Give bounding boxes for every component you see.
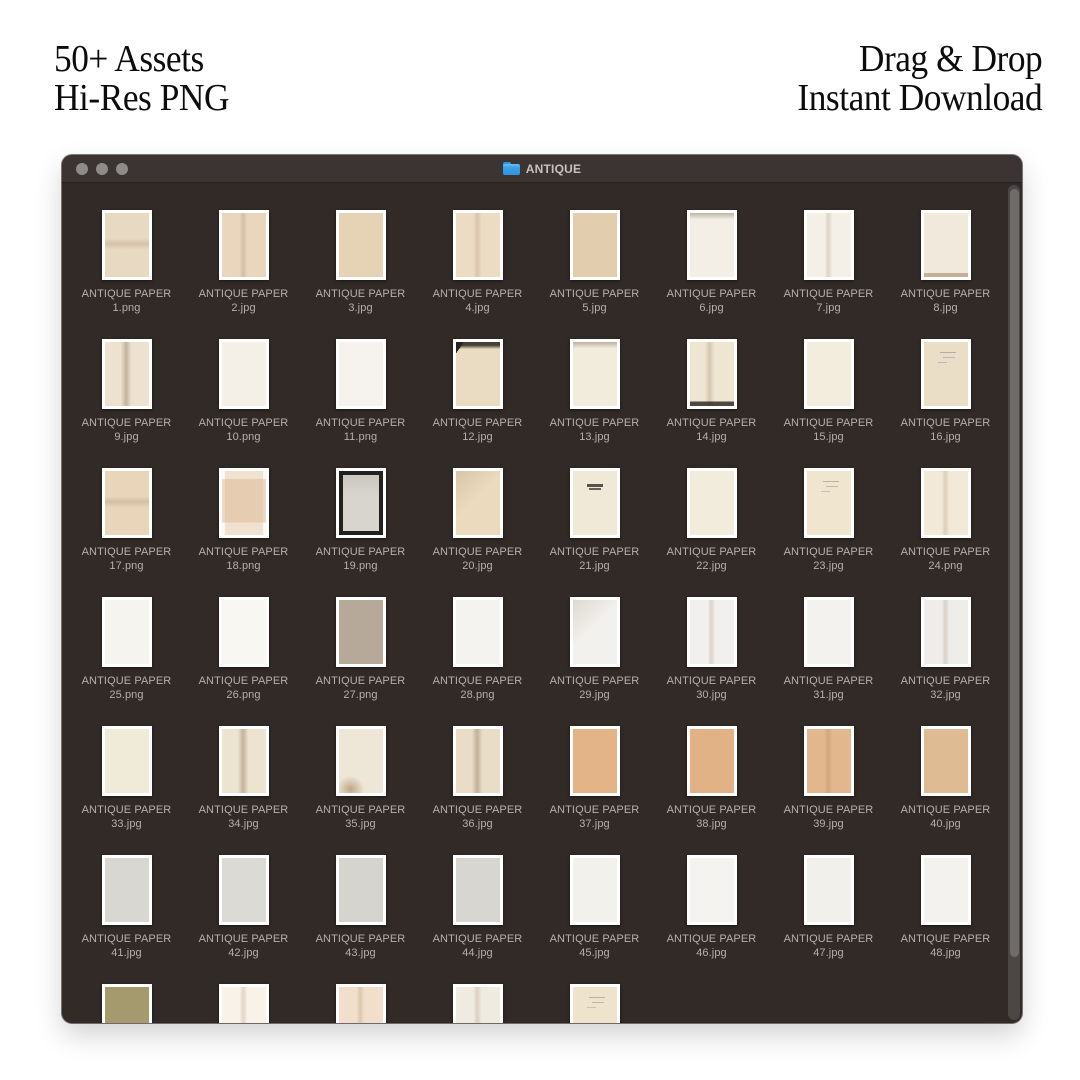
file-label-line1: ANTIQUE PAPER (667, 932, 757, 946)
file-label-line2: 23.jpg (784, 559, 874, 573)
file-item[interactable]: ANTIQUE PAPER 10.png (185, 339, 302, 468)
paper-preview (924, 600, 968, 664)
file-label: ANTIQUE PAPER 41.jpg (82, 932, 172, 960)
file-thumbnail (687, 468, 737, 538)
paper-preview (456, 858, 500, 922)
paper-preview (339, 987, 383, 1023)
folder-icon (503, 162, 520, 175)
file-thumbnail (570, 468, 620, 538)
file-thumbnail (570, 726, 620, 796)
file-label-line2: 14.jpg (667, 430, 757, 444)
paper-preview (573, 213, 617, 277)
traffic-lights (76, 155, 128, 183)
file-label-line2: 22.jpg (667, 559, 757, 573)
file-thumbnail (336, 984, 386, 1023)
file-item[interactable]: ANTIQUE PAPER 11.png (302, 339, 419, 468)
paper-preview (222, 600, 266, 664)
file-label: ANTIQUE PAPER 9.jpg (82, 416, 172, 444)
file-item[interactable]: ANTIQUE PAPER 41.jpg (68, 855, 185, 984)
file-label-line1: ANTIQUE PAPER (667, 545, 757, 559)
file-item[interactable]: ANTIQUE PAPER 29.jpg (536, 597, 653, 726)
paper-preview (105, 600, 149, 664)
file-label-line2: 47.jpg (784, 946, 874, 960)
file-label: ANTIQUE PAPER 33.jpg (82, 803, 172, 831)
file-label-line2: 41.jpg (82, 946, 172, 960)
file-item[interactable]: ANTIQUE PAPER 47.jpg (770, 855, 887, 984)
file-label-line2: 46.jpg (667, 946, 757, 960)
window-title: ANTIQUE (526, 162, 581, 176)
file-item[interactable]: ANTIQUE PAPER 9.jpg (68, 339, 185, 468)
file-item[interactable]: ANTIQUE PAPER 12.jpg (419, 339, 536, 468)
paper-preview (222, 987, 266, 1023)
file-label-line2: 24.png (901, 559, 991, 573)
file-label-line1: ANTIQUE PAPER (901, 545, 991, 559)
file-label-line2: 5.jpg (550, 301, 640, 315)
paper-preview (456, 213, 500, 277)
paper-preview (924, 729, 968, 793)
file-label-line2: 2.jpg (199, 301, 289, 315)
file-label: ANTIQUE PAPER 10.png (199, 416, 289, 444)
file-item[interactable]: ANTIQUE PAPER 2.jpg (185, 210, 302, 339)
file-label: ANTIQUE PAPER 17.png (82, 545, 172, 573)
file-item[interactable]: ANTIQUE PAPER 36.jpg (419, 726, 536, 855)
file-thumbnail (804, 468, 854, 538)
file-label: ANTIQUE PAPER 32.jpg (901, 674, 991, 702)
file-thumbnail (687, 339, 737, 409)
paper-preview (456, 342, 500, 406)
file-label-line1: ANTIQUE PAPER (82, 803, 172, 817)
file-label-line1: ANTIQUE PAPER (82, 932, 172, 946)
file-label-line1: ANTIQUE PAPER (199, 674, 289, 688)
file-thumbnail (921, 468, 971, 538)
file-label-line1: ANTIQUE PAPER (550, 416, 640, 430)
paper-preview (222, 858, 266, 922)
file-label-line1: ANTIQUE PAPER (433, 545, 523, 559)
file-thumbnail (336, 468, 386, 538)
file-item[interactable]: ANTIQUE PAPER 18.png (185, 468, 302, 597)
file-label-line1: ANTIQUE PAPER (316, 674, 406, 688)
file-thumbnail (804, 597, 854, 667)
file-thumbnail (102, 984, 152, 1023)
paper-preview (573, 729, 617, 793)
file-item[interactable]: ANTIQUE PAPER 26.png (185, 597, 302, 726)
paper-preview (924, 213, 968, 277)
file-label-line2: 44.jpg (433, 946, 523, 960)
file-thumbnail (102, 597, 152, 667)
file-label: ANTIQUE PAPER 20.jpg (433, 545, 523, 573)
file-label-line2: 40.jpg (901, 817, 991, 831)
file-thumbnail (570, 855, 620, 925)
file-item[interactable]: ANTIQUE PAPER 13.jpg (536, 339, 653, 468)
file-label-line1: ANTIQUE PAPER (784, 803, 874, 817)
file-item[interactable]: ANTIQUE PAPER 46.jpg (653, 855, 770, 984)
file-label-line1: ANTIQUE PAPER (199, 287, 289, 301)
file-thumbnail (219, 726, 269, 796)
file-thumbnail (804, 339, 854, 409)
file-label-line1: ANTIQUE PAPER (199, 932, 289, 946)
finder-window: ANTIQUE ANTIQUE PAPER 1.png ANTIQUE PAPE… (62, 155, 1022, 1023)
file-label: ANTIQUE PAPER 22.jpg (667, 545, 757, 573)
file-thumbnail (219, 210, 269, 280)
file-label-line1: ANTIQUE PAPER (901, 932, 991, 946)
headline-right-line1: Drag & Drop (797, 40, 1042, 79)
file-label: ANTIQUE PAPER 39.jpg (784, 803, 874, 831)
file-label-line2: 16.jpg (901, 430, 991, 444)
file-item[interactable]: ANTIQUE PAPER 20.jpg (419, 468, 536, 597)
paper-preview (807, 600, 851, 664)
file-label-line1: ANTIQUE PAPER (433, 416, 523, 430)
file-thumbnail (336, 210, 386, 280)
file-label: ANTIQUE PAPER 42.jpg (199, 932, 289, 960)
paper-preview (456, 471, 500, 535)
file-label-line2: 7.jpg (784, 301, 874, 315)
paper-preview (105, 729, 149, 793)
file-item[interactable]: ANTIQUE PAPER 43.jpg (302, 855, 419, 984)
headline-left-line2: Hi-Res PNG (54, 79, 229, 118)
file-label-line1: ANTIQUE PAPER (784, 287, 874, 301)
file-label: ANTIQUE PAPER 16.jpg (901, 416, 991, 444)
file-item[interactable]: ANTIQUE PAPER 34.jpg (185, 726, 302, 855)
paper-preview (573, 471, 617, 535)
file-thumbnail (804, 726, 854, 796)
file-label: ANTIQUE PAPER 15.jpg (784, 416, 874, 444)
file-label-line2: 10.png (199, 430, 289, 444)
file-label-line1: ANTIQUE PAPER (901, 803, 991, 817)
file-label-line1: ANTIQUE PAPER (316, 416, 406, 430)
file-item[interactable]: ANTIQUE PAPER 48.jpg (887, 855, 1004, 984)
file-label-line1: ANTIQUE PAPER (667, 287, 757, 301)
file-label: ANTIQUE PAPER 6.jpg (667, 287, 757, 315)
paper-preview (339, 858, 383, 922)
file-item[interactable]: ANTIQUE PAPER 23.jpg (770, 468, 887, 597)
file-label: ANTIQUE PAPER 21.jpg (550, 545, 640, 573)
file-label-line2: 17.png (82, 559, 172, 573)
file-label-line2: 31.jpg (784, 688, 874, 702)
file-label-line1: ANTIQUE PAPER (82, 416, 172, 430)
file-item[interactable]: ANTIQUE PAPER 24.png (887, 468, 1004, 597)
file-label-line2: 28.png (433, 688, 523, 702)
paper-preview (339, 471, 383, 535)
file-item[interactable]: ANTIQUE PAPER 6.jpg (653, 210, 770, 339)
file-label-line1: ANTIQUE PAPER (316, 545, 406, 559)
file-thumbnail (219, 984, 269, 1023)
file-label-line2: 6.jpg (667, 301, 757, 315)
paper-preview (105, 987, 149, 1023)
file-item[interactable]: ANTIQUE PAPER 38.jpg (653, 726, 770, 855)
file-thumbnail (219, 597, 269, 667)
file-label-line1: ANTIQUE PAPER (199, 545, 289, 559)
file-label-line1: ANTIQUE PAPER (550, 674, 640, 688)
file-label-line2: 12.jpg (433, 430, 523, 444)
file-thumbnail (219, 339, 269, 409)
file-item[interactable]: ANTIQUE PAPER 14.jpg (653, 339, 770, 468)
file-item[interactable]: ANTIQUE PAPER 8.jpg (887, 210, 1004, 339)
file-thumbnail (570, 339, 620, 409)
window-title-group: ANTIQUE (503, 162, 581, 176)
file-label-line2: 19.png (316, 559, 406, 573)
file-thumbnail (102, 339, 152, 409)
file-item[interactable]: ANTIQUE PAPER 21.jpg (536, 468, 653, 597)
paper-preview (690, 729, 734, 793)
file-item[interactable]: ANTIQUE PAPER 4.jpg (419, 210, 536, 339)
file-label-line1: ANTIQUE PAPER (550, 803, 640, 817)
file-item[interactable]: ANTIQUE PAPER 25.png (68, 597, 185, 726)
paper-preview (222, 729, 266, 793)
paper-preview (105, 213, 149, 277)
file-item[interactable]: ANTIQUE PAPER 17.png (68, 468, 185, 597)
file-item[interactable] (302, 984, 419, 1023)
file-label: ANTIQUE PAPER 48.jpg (901, 932, 991, 960)
file-thumbnail (336, 597, 386, 667)
file-item[interactable] (419, 984, 536, 1023)
file-label-line1: ANTIQUE PAPER (667, 803, 757, 817)
file-thumbnail (453, 468, 503, 538)
file-thumbnail (102, 210, 152, 280)
file-label: ANTIQUE PAPER 36.jpg (433, 803, 523, 831)
paper-preview (222, 213, 266, 277)
file-label-line1: ANTIQUE PAPER (433, 674, 523, 688)
file-label: ANTIQUE PAPER 47.jpg (784, 932, 874, 960)
file-thumbnail (336, 726, 386, 796)
file-label-line2: 39.jpg (784, 817, 874, 831)
file-thumbnail (219, 468, 269, 538)
file-item[interactable]: ANTIQUE PAPER 32.jpg (887, 597, 1004, 726)
file-label-line2: 32.jpg (901, 688, 991, 702)
paper-preview (807, 858, 851, 922)
file-item[interactable]: ANTIQUE PAPER 22.jpg (653, 468, 770, 597)
file-thumbnail (453, 339, 503, 409)
file-item[interactable]: ANTIQUE PAPER 15.jpg (770, 339, 887, 468)
file-label-line2: 30.jpg (667, 688, 757, 702)
file-thumbnail (921, 726, 971, 796)
file-thumbnail (570, 984, 620, 1023)
file-label: ANTIQUE PAPER 3.jpg (316, 287, 406, 315)
file-thumbnail (687, 726, 737, 796)
file-label: ANTIQUE PAPER 43.jpg (316, 932, 406, 960)
paper-preview (339, 600, 383, 664)
file-label-line2: 48.jpg (901, 946, 991, 960)
file-label: ANTIQUE PAPER 1.png (82, 287, 172, 315)
file-label: ANTIQUE PAPER 12.jpg (433, 416, 523, 444)
paper-preview (807, 213, 851, 277)
paper-preview (456, 729, 500, 793)
file-thumbnail (453, 726, 503, 796)
zoom-button[interactable] (116, 163, 128, 175)
file-thumbnail (921, 210, 971, 280)
headline-right-line2: Instant Download (797, 79, 1042, 118)
file-thumbnail (102, 855, 152, 925)
file-label-line1: ANTIQUE PAPER (433, 287, 523, 301)
file-label: ANTIQUE PAPER 26.png (199, 674, 289, 702)
file-thumbnail (921, 855, 971, 925)
paper-preview (807, 729, 851, 793)
file-label: ANTIQUE PAPER 5.jpg (550, 287, 640, 315)
paper-preview (222, 342, 266, 406)
file-item[interactable] (536, 984, 653, 1023)
file-label-line1: ANTIQUE PAPER (784, 932, 874, 946)
paper-preview (690, 471, 734, 535)
file-item[interactable]: ANTIQUE PAPER 40.jpg (887, 726, 1004, 855)
file-item[interactable]: ANTIQUE PAPER 30.jpg (653, 597, 770, 726)
paper-preview (105, 471, 149, 535)
file-label-line2: 36.jpg (433, 817, 523, 831)
file-label: ANTIQUE PAPER 46.jpg (667, 932, 757, 960)
file-label-line1: ANTIQUE PAPER (316, 932, 406, 946)
file-label-line2: 20.jpg (433, 559, 523, 573)
paper-preview (690, 600, 734, 664)
file-label-line2: 27.png (316, 688, 406, 702)
file-item[interactable]: ANTIQUE PAPER 39.jpg (770, 726, 887, 855)
file-label: ANTIQUE PAPER 35.jpg (316, 803, 406, 831)
paper-preview (339, 342, 383, 406)
file-label-line1: ANTIQUE PAPER (199, 803, 289, 817)
file-label-line1: ANTIQUE PAPER (784, 545, 874, 559)
file-thumbnail (570, 597, 620, 667)
close-button[interactable] (76, 163, 88, 175)
paper-preview (807, 471, 851, 535)
file-item[interactable] (185, 984, 302, 1023)
file-thumbnail (102, 726, 152, 796)
file-label-line1: ANTIQUE PAPER (550, 287, 640, 301)
file-label: ANTIQUE PAPER 14.jpg (667, 416, 757, 444)
file-label-line2: 25.png (82, 688, 172, 702)
file-label-line2: 42.jpg (199, 946, 289, 960)
file-label: ANTIQUE PAPER 8.jpg (901, 287, 991, 315)
file-label-line2: 43.jpg (316, 946, 406, 960)
file-item[interactable]: ANTIQUE PAPER 1.png (68, 210, 185, 339)
file-label-line1: ANTIQUE PAPER (550, 545, 640, 559)
file-label: ANTIQUE PAPER 25.png (82, 674, 172, 702)
file-item[interactable]: ANTIQUE PAPER 33.jpg (68, 726, 185, 855)
file-label: ANTIQUE PAPER 45.jpg (550, 932, 640, 960)
paper-preview (456, 600, 500, 664)
file-item[interactable]: ANTIQUE PAPER 5.jpg (536, 210, 653, 339)
file-item[interactable] (68, 984, 185, 1023)
paper-preview (105, 342, 149, 406)
file-thumbnail (687, 597, 737, 667)
scrollbar-thumb[interactable] (1010, 189, 1019, 957)
file-label-line1: ANTIQUE PAPER (901, 416, 991, 430)
file-label-line1: ANTIQUE PAPER (82, 287, 172, 301)
file-label: ANTIQUE PAPER 40.jpg (901, 803, 991, 831)
file-thumbnail (804, 210, 854, 280)
file-label: ANTIQUE PAPER 28.png (433, 674, 523, 702)
paper-preview (339, 213, 383, 277)
paper-preview (456, 987, 500, 1023)
file-label-line1: ANTIQUE PAPER (316, 803, 406, 817)
paper-preview (573, 987, 617, 1023)
file-label-line2: 3.jpg (316, 301, 406, 315)
file-item[interactable]: ANTIQUE PAPER 7.jpg (770, 210, 887, 339)
file-label-line1: ANTIQUE PAPER (316, 287, 406, 301)
file-label-line1: ANTIQUE PAPER (82, 545, 172, 559)
file-thumbnail (921, 597, 971, 667)
file-label: ANTIQUE PAPER 4.jpg (433, 287, 523, 315)
file-label-line1: ANTIQUE PAPER (784, 674, 874, 688)
file-label-line2: 13.jpg (550, 430, 640, 444)
file-label-line2: 29.jpg (550, 688, 640, 702)
file-item[interactable]: ANTIQUE PAPER 44.jpg (419, 855, 536, 984)
file-thumbnail (453, 855, 503, 925)
file-grid: ANTIQUE PAPER 1.png ANTIQUE PAPER 2.jpg … (68, 210, 1008, 1023)
file-item[interactable]: ANTIQUE PAPER 35.jpg (302, 726, 419, 855)
file-thumbnail (804, 855, 854, 925)
paper-preview (924, 858, 968, 922)
file-label-line2: 35.jpg (316, 817, 406, 831)
paper-preview (924, 342, 968, 406)
file-label-line2: 45.jpg (550, 946, 640, 960)
file-item[interactable]: ANTIQUE PAPER 37.jpg (536, 726, 653, 855)
file-label-line1: ANTIQUE PAPER (901, 674, 991, 688)
file-label-line1: ANTIQUE PAPER (667, 416, 757, 430)
file-item[interactable]: ANTIQUE PAPER 27.png (302, 597, 419, 726)
paper-preview (573, 600, 617, 664)
scrollbar-track[interactable] (1008, 185, 1020, 1020)
file-item[interactable]: ANTIQUE PAPER 31.jpg (770, 597, 887, 726)
headline-left-line1: 50+ Assets (54, 40, 229, 79)
file-label-line2: 38.jpg (667, 817, 757, 831)
file-thumbnail (336, 339, 386, 409)
file-label-line1: ANTIQUE PAPER (82, 674, 172, 688)
file-thumbnail (921, 339, 971, 409)
file-item[interactable]: ANTIQUE PAPER 3.jpg (302, 210, 419, 339)
file-label: ANTIQUE PAPER 2.jpg (199, 287, 289, 315)
file-label: ANTIQUE PAPER 30.jpg (667, 674, 757, 702)
file-label: ANTIQUE PAPER 29.jpg (550, 674, 640, 702)
paper-preview (222, 471, 266, 535)
file-label-line2: 18.png (199, 559, 289, 573)
file-label: ANTIQUE PAPER 38.jpg (667, 803, 757, 831)
paper-preview (690, 342, 734, 406)
file-item[interactable]: ANTIQUE PAPER 42.jpg (185, 855, 302, 984)
paper-preview (690, 858, 734, 922)
file-label-line2: 9.jpg (82, 430, 172, 444)
page: 50+ Assets Hi-Res PNG Drag & Drop Instan… (0, 0, 1080, 1080)
file-label: ANTIQUE PAPER 11.png (316, 416, 406, 444)
file-label-line1: ANTIQUE PAPER (433, 803, 523, 817)
paper-preview (690, 213, 734, 277)
paper-preview (807, 342, 851, 406)
file-label: ANTIQUE PAPER 24.png (901, 545, 991, 573)
file-item[interactable]: ANTIQUE PAPER 45.jpg (536, 855, 653, 984)
file-label-line2: 8.jpg (901, 301, 991, 315)
file-item[interactable]: ANTIQUE PAPER 19.png (302, 468, 419, 597)
headline-left: 50+ Assets Hi-Res PNG (54, 40, 229, 118)
file-item[interactable]: ANTIQUE PAPER 16.jpg (887, 339, 1004, 468)
headline-right: Drag & Drop Instant Download (797, 40, 1042, 118)
file-item[interactable]: ANTIQUE PAPER 28.png (419, 597, 536, 726)
paper-preview (573, 342, 617, 406)
file-label-line1: ANTIQUE PAPER (901, 287, 991, 301)
file-label: ANTIQUE PAPER 23.jpg (784, 545, 874, 573)
file-label-line2: 4.jpg (433, 301, 523, 315)
window-titlebar[interactable]: ANTIQUE (62, 155, 1022, 183)
minimize-button[interactable] (96, 163, 108, 175)
file-label-line2: 26.png (199, 688, 289, 702)
file-label: ANTIQUE PAPER 7.jpg (784, 287, 874, 315)
file-label: ANTIQUE PAPER 13.jpg (550, 416, 640, 444)
paper-preview (339, 729, 383, 793)
file-thumbnail (453, 597, 503, 667)
file-label-line2: 15.jpg (784, 430, 874, 444)
file-label: ANTIQUE PAPER 34.jpg (199, 803, 289, 831)
file-label-line2: 37.jpg (550, 817, 640, 831)
paper-preview (573, 858, 617, 922)
file-label: ANTIQUE PAPER 18.png (199, 545, 289, 573)
file-label-line2: 11.png (316, 430, 406, 444)
file-thumbnail (336, 855, 386, 925)
file-label-line1: ANTIQUE PAPER (667, 674, 757, 688)
